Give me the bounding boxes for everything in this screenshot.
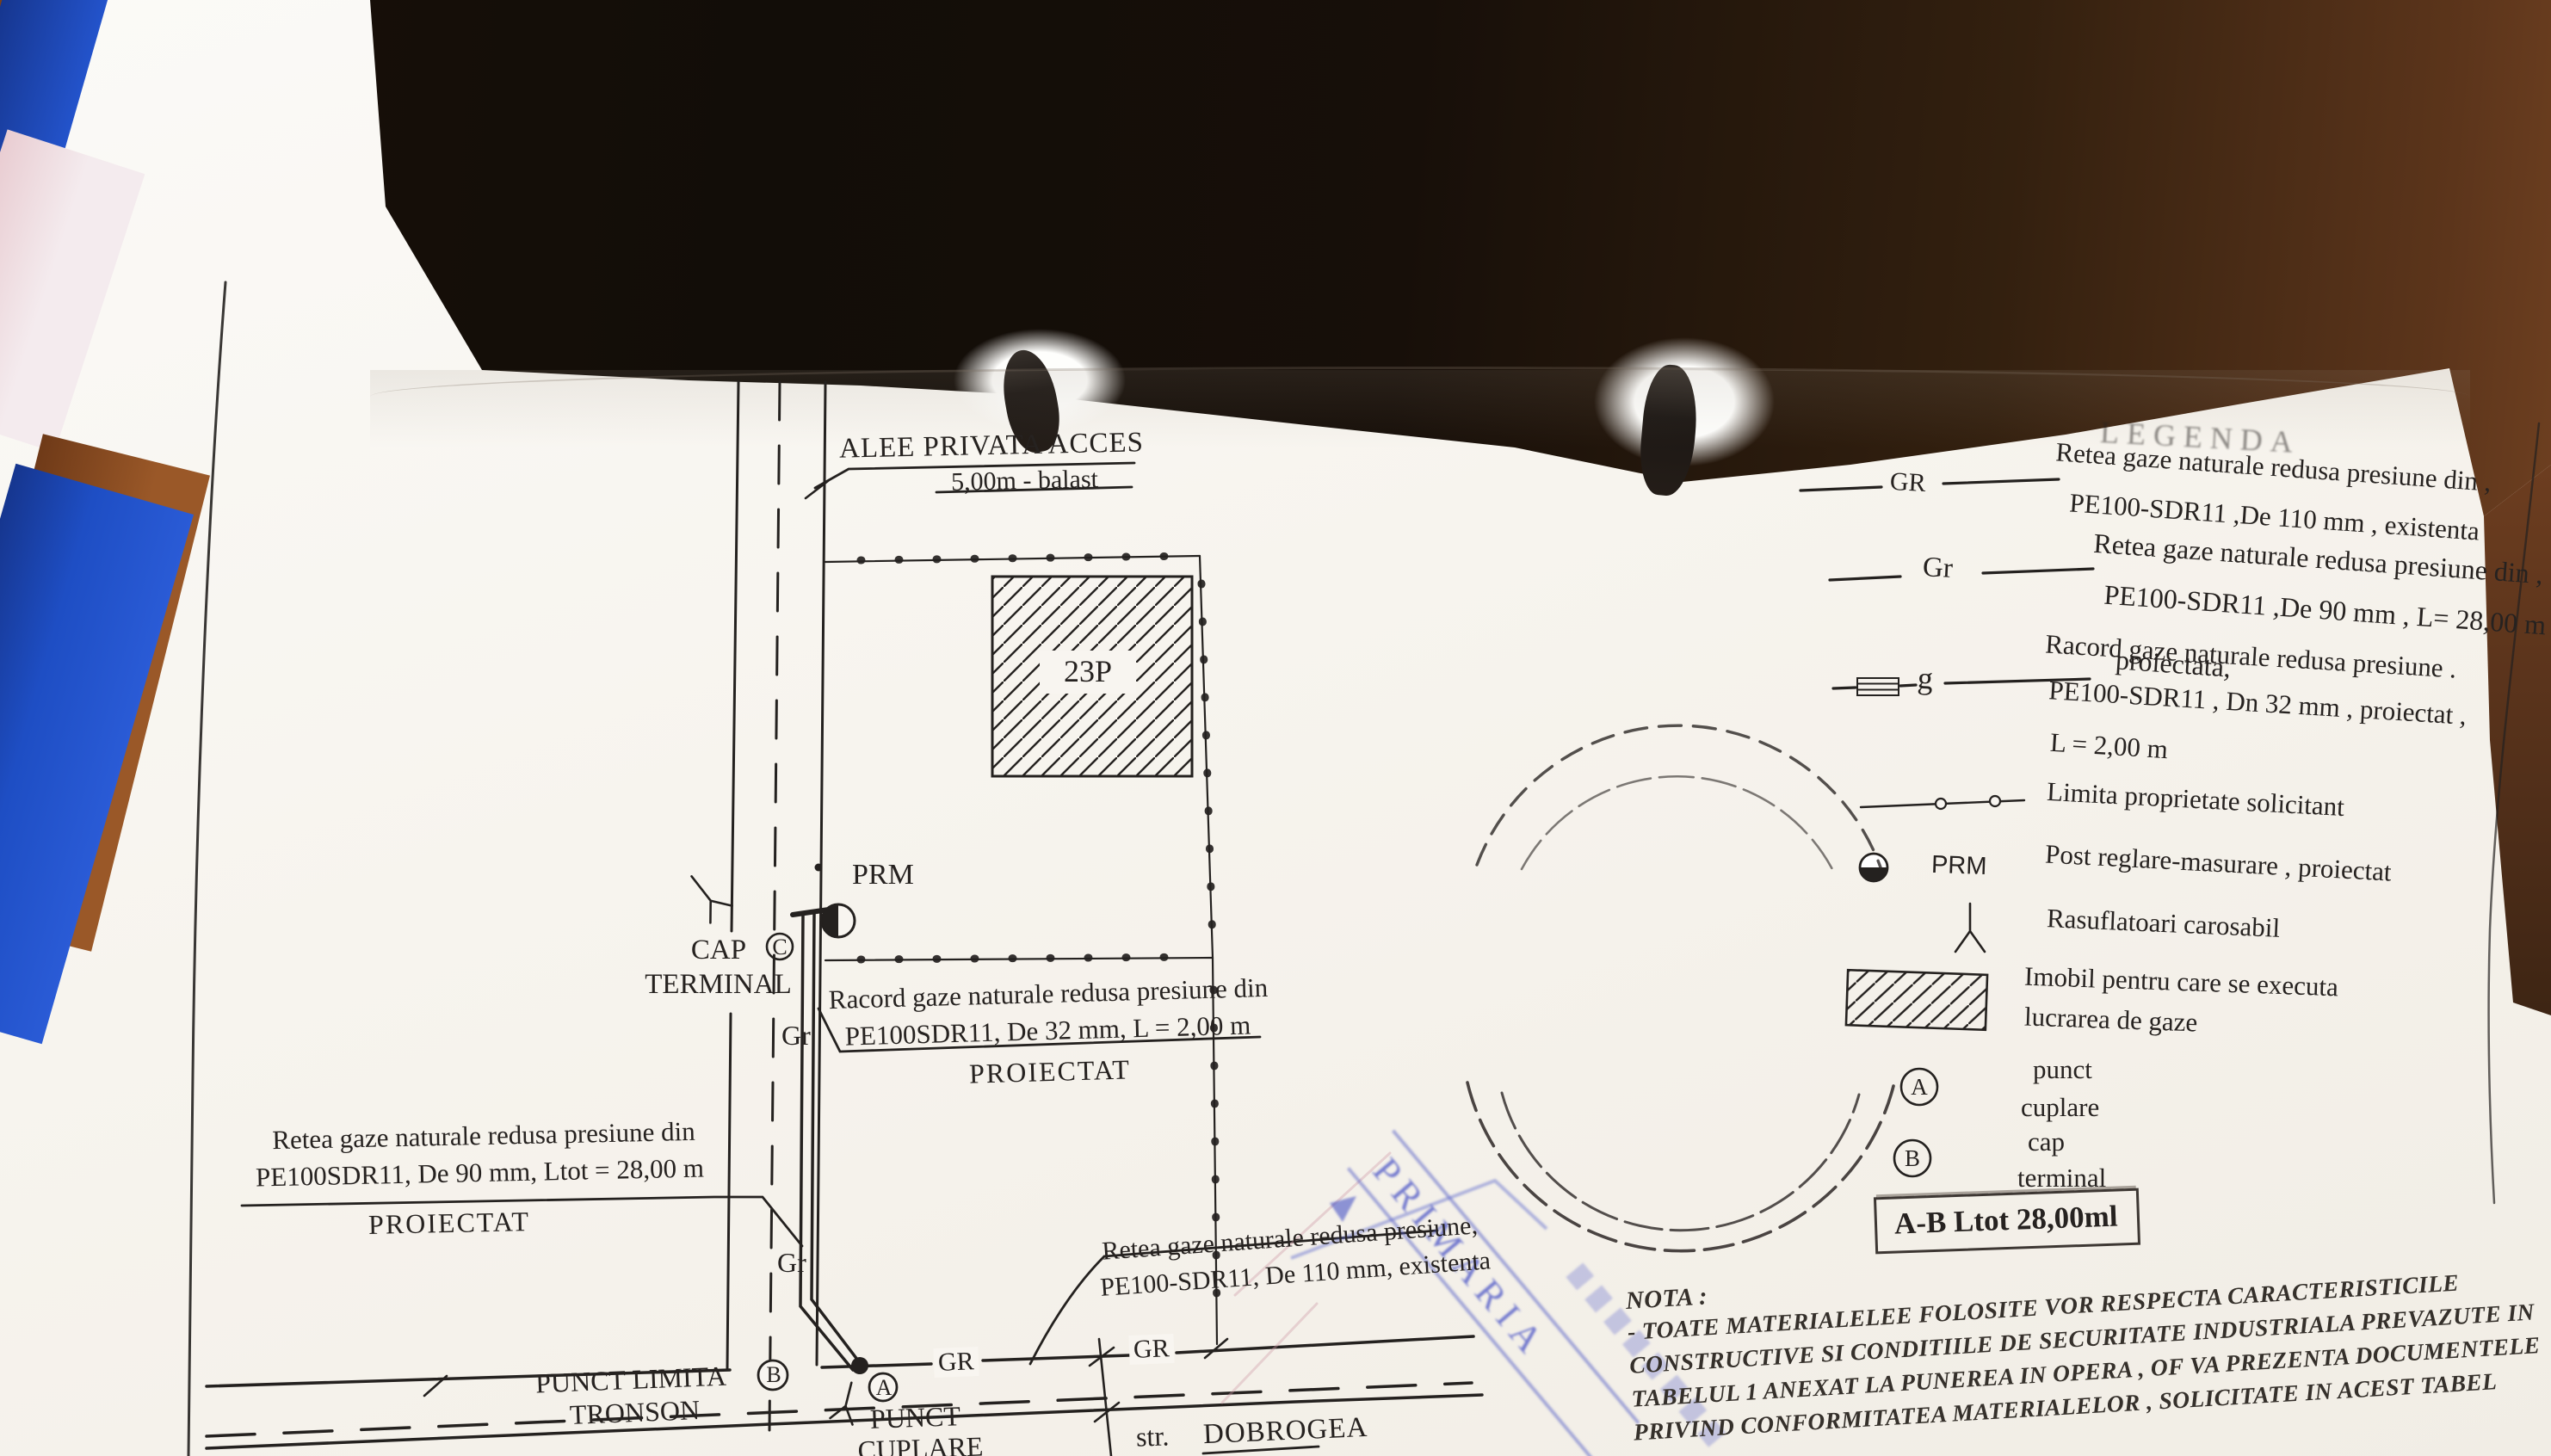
length-summary-text: A-B Ltot 28,00ml	[1876, 1191, 2137, 1242]
punct-cuplare-line2: CUPLARE	[853, 1431, 987, 1456]
stamp-bleed-arcs	[1467, 725, 1893, 1251]
punct-limita-line2: TRONSON	[554, 1394, 714, 1431]
gas-line-label-1: GR	[933, 1347, 979, 1378]
legend-service-symbol-label: g	[1917, 661, 1934, 696]
legend-entry-text: cap	[2028, 1127, 2065, 1157]
alley-label-line1: ALEE PRIVATA ACCES	[839, 427, 1141, 465]
length-summary-box: A-B Ltot 28,00ml	[1874, 1188, 2140, 1255]
photographed-gas-plan: PRIMARIA ALEE PRIVATA ACCES 5,00m - bala…	[0, 0, 2551, 1456]
label-leaders	[242, 463, 1437, 1453]
frame-right-border	[2489, 423, 2539, 1203]
building-label: 23P	[1041, 654, 1134, 688]
street-prefix: str.	[1135, 1421, 1169, 1453]
marker-a-letter: A	[871, 1375, 897, 1400]
projected-pipe	[800, 914, 861, 1370]
stamp-arrow-mark	[1330, 1196, 1356, 1222]
cap-terminal-line2: TERMINAL	[639, 969, 798, 1001]
legend-entry-text: punct	[2033, 1055, 2092, 1085]
legend-existing-line-symbol	[1801, 479, 2059, 490]
vent-symbol-upper	[681, 868, 732, 923]
legend-building-symbol	[1846, 970, 1987, 1030]
riser-label-upper: Gr	[781, 1021, 811, 1052]
legend-point-a-letter: A	[1906, 1074, 1932, 1100]
marker-b-letter: B	[761, 1362, 787, 1387]
legend-existing-symbol-label: GR	[1889, 467, 1926, 498]
legend-entry-text: cuplare	[2021, 1093, 2099, 1123]
vent-symbol-lower	[830, 1379, 862, 1424]
prm-label: PRM	[852, 859, 914, 891]
legend-entry-text: lucrarea de gaze	[2023, 1002, 2197, 1038]
legend-projected-line-symbol	[1830, 569, 2093, 580]
legend-service-hatched-block	[1857, 678, 1899, 695]
alley-label-line2: 5,00m - balast	[911, 464, 1140, 497]
retea-proiectata-line3: PROIECTAT	[320, 1206, 579, 1242]
legend-projected-symbol-label: Gr	[1922, 552, 1954, 585]
legend-vent-symbol	[1955, 904, 1985, 952]
riser-label-lower: Gr	[777, 1248, 806, 1279]
punct-cuplare-line1: PUNCT	[865, 1401, 965, 1435]
gas-line-label-2: GR	[1128, 1334, 1174, 1365]
coupling-dot	[851, 1357, 868, 1374]
frame-left-border	[188, 282, 225, 1456]
legend-prm-label: PRM	[1930, 851, 1987, 881]
pipe-dot	[815, 864, 823, 872]
legend-point-b-letter: B	[1899, 1145, 1925, 1171]
cap-terminal-line1: CAP	[680, 935, 757, 966]
cap-terminal-marker: C	[767, 935, 793, 959]
